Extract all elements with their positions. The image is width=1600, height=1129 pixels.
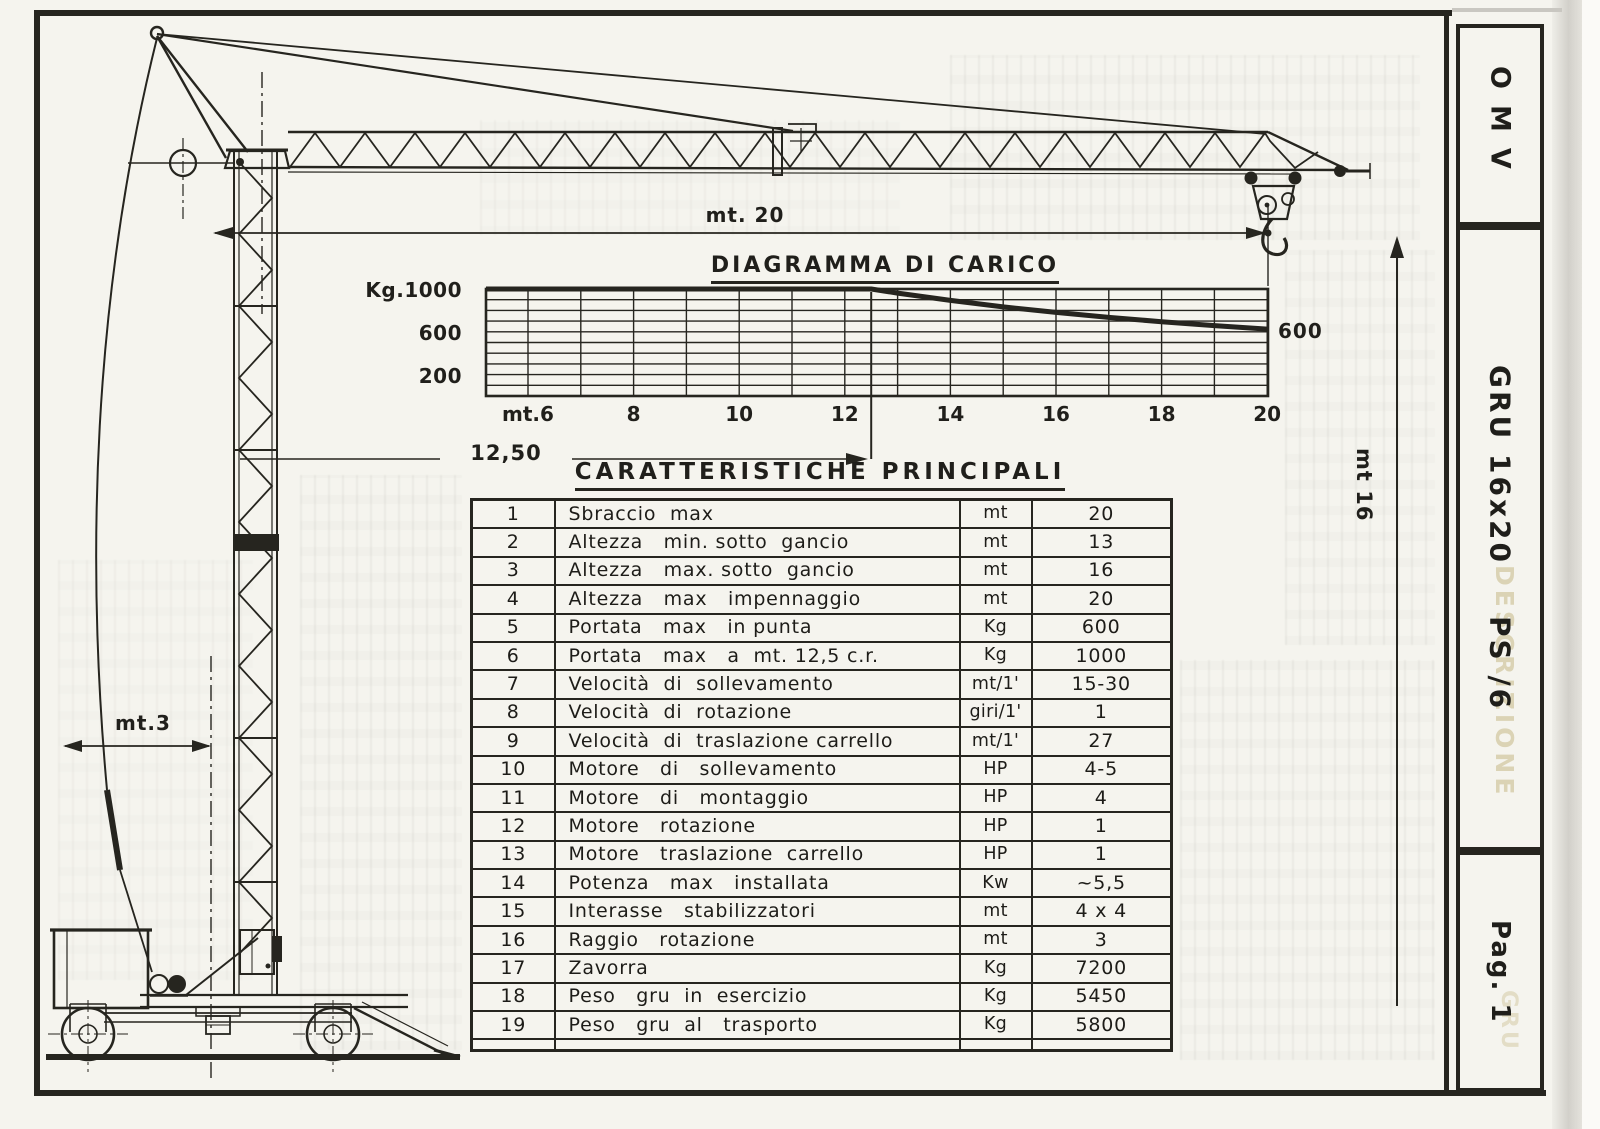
y-tick-label: Kg.1000 xyxy=(368,278,462,302)
table-row: 7Velocità di sollevamentomt/1'15-30 xyxy=(472,670,1172,698)
spec-table-title: CARATTERISTICHE PRINCIPALI xyxy=(470,459,1170,485)
table-row: 15Interasse stabilizzatorimt4 x 4 xyxy=(472,897,1172,925)
x-tick-label: 12 xyxy=(813,402,877,426)
table-row: 16Raggio rotazionemt3 xyxy=(472,926,1172,954)
hook-height-dimension-label: mt 16 xyxy=(1352,448,1376,521)
brand-label: OMV xyxy=(1485,66,1516,185)
scanned-crane-datasheet: { "sidebar": { "brand": "OMV", "model_li… xyxy=(0,0,1600,1129)
sidebar-model-box: GRU 16x20 PS /6 xyxy=(1456,226,1544,851)
x-tick-label: 8 xyxy=(602,402,666,426)
table-row: 19Peso gru al trasportoKg5800 xyxy=(472,1011,1172,1039)
curve-end-load-label: 600 xyxy=(1278,319,1348,343)
x-tick-label: 20 xyxy=(1235,402,1299,426)
load-chart-grid xyxy=(486,289,1268,396)
model-label: GRU 16x20 PS /6 xyxy=(1484,365,1517,711)
table-row: 9Velocità di traslazione carrellomt/1'27 xyxy=(472,727,1172,755)
x-tick-label: 14 xyxy=(918,402,982,426)
table-row: 6Portata max a mt. 12,5 c.r.Kg1000 xyxy=(472,642,1172,670)
table-row: 17ZavorraKg7200 xyxy=(472,954,1172,982)
frame-right-border xyxy=(1444,10,1449,1096)
spec-table-body: 1Sbraccio maxmt202Altezza min. sotto gan… xyxy=(472,500,1172,1051)
x-tick-label: 10 xyxy=(707,402,771,426)
table-row: 3Altezza max. sotto ganciomt16 xyxy=(472,557,1172,585)
table-row: 2Altezza min. sotto ganciomt13 xyxy=(472,528,1172,556)
table-row: 12Motore rotazioneHP1 xyxy=(472,812,1172,840)
sidebar-brand-box: OMV xyxy=(1456,24,1544,226)
x-tick-label: 16 xyxy=(1024,402,1088,426)
frame-top-border-edge xyxy=(1452,8,1562,12)
sidebar-page-box: Pag. 1 xyxy=(1456,851,1544,1092)
page-number-label: Pag. 1 xyxy=(1485,920,1515,1024)
table-row: 10Motore di sollevamentoHP4-5 xyxy=(472,756,1172,784)
tail-radius-dimension-label: mt.3 xyxy=(95,711,191,735)
table-row: 8Velocità di rotazionegiri/1'1 xyxy=(472,699,1172,727)
table-row: 5Portata max in puntaKg600 xyxy=(472,614,1172,642)
jib-length-dimension-label: mt. 20 xyxy=(655,203,835,227)
jib-lattice xyxy=(290,133,1318,168)
x-tick-label: 18 xyxy=(1130,402,1194,426)
x-tick-label: mt.6 xyxy=(496,402,560,426)
tower-lattice xyxy=(239,162,272,954)
table-row: 1Sbraccio maxmt20 xyxy=(472,500,1172,529)
frame-left-border xyxy=(34,10,40,1096)
table-row: 13Motore traslazione carrelloHP1 xyxy=(472,841,1172,869)
spec-table: 1Sbraccio maxmt202Altezza min. sotto gan… xyxy=(470,498,1173,1052)
y-tick-label: 600 xyxy=(368,321,462,345)
chart-x-ticks: mt.68101214161820 xyxy=(0,402,1360,428)
y-tick-label: 200 xyxy=(368,364,462,388)
table-row: 14Potenza max installataKw~5,5 xyxy=(472,869,1172,897)
chart-title: DIAGRAMMA DI CARICO xyxy=(650,253,1120,278)
table-row: 4Altezza max impennaggiomt20 xyxy=(472,585,1172,613)
table-row: 18Peso gru in esercizioKg5450 xyxy=(472,983,1172,1011)
frame-top-border xyxy=(34,10,1452,16)
table-row: 11Motore di montaggioHP4 xyxy=(472,784,1172,812)
frame-bottom-border xyxy=(34,1090,1546,1096)
